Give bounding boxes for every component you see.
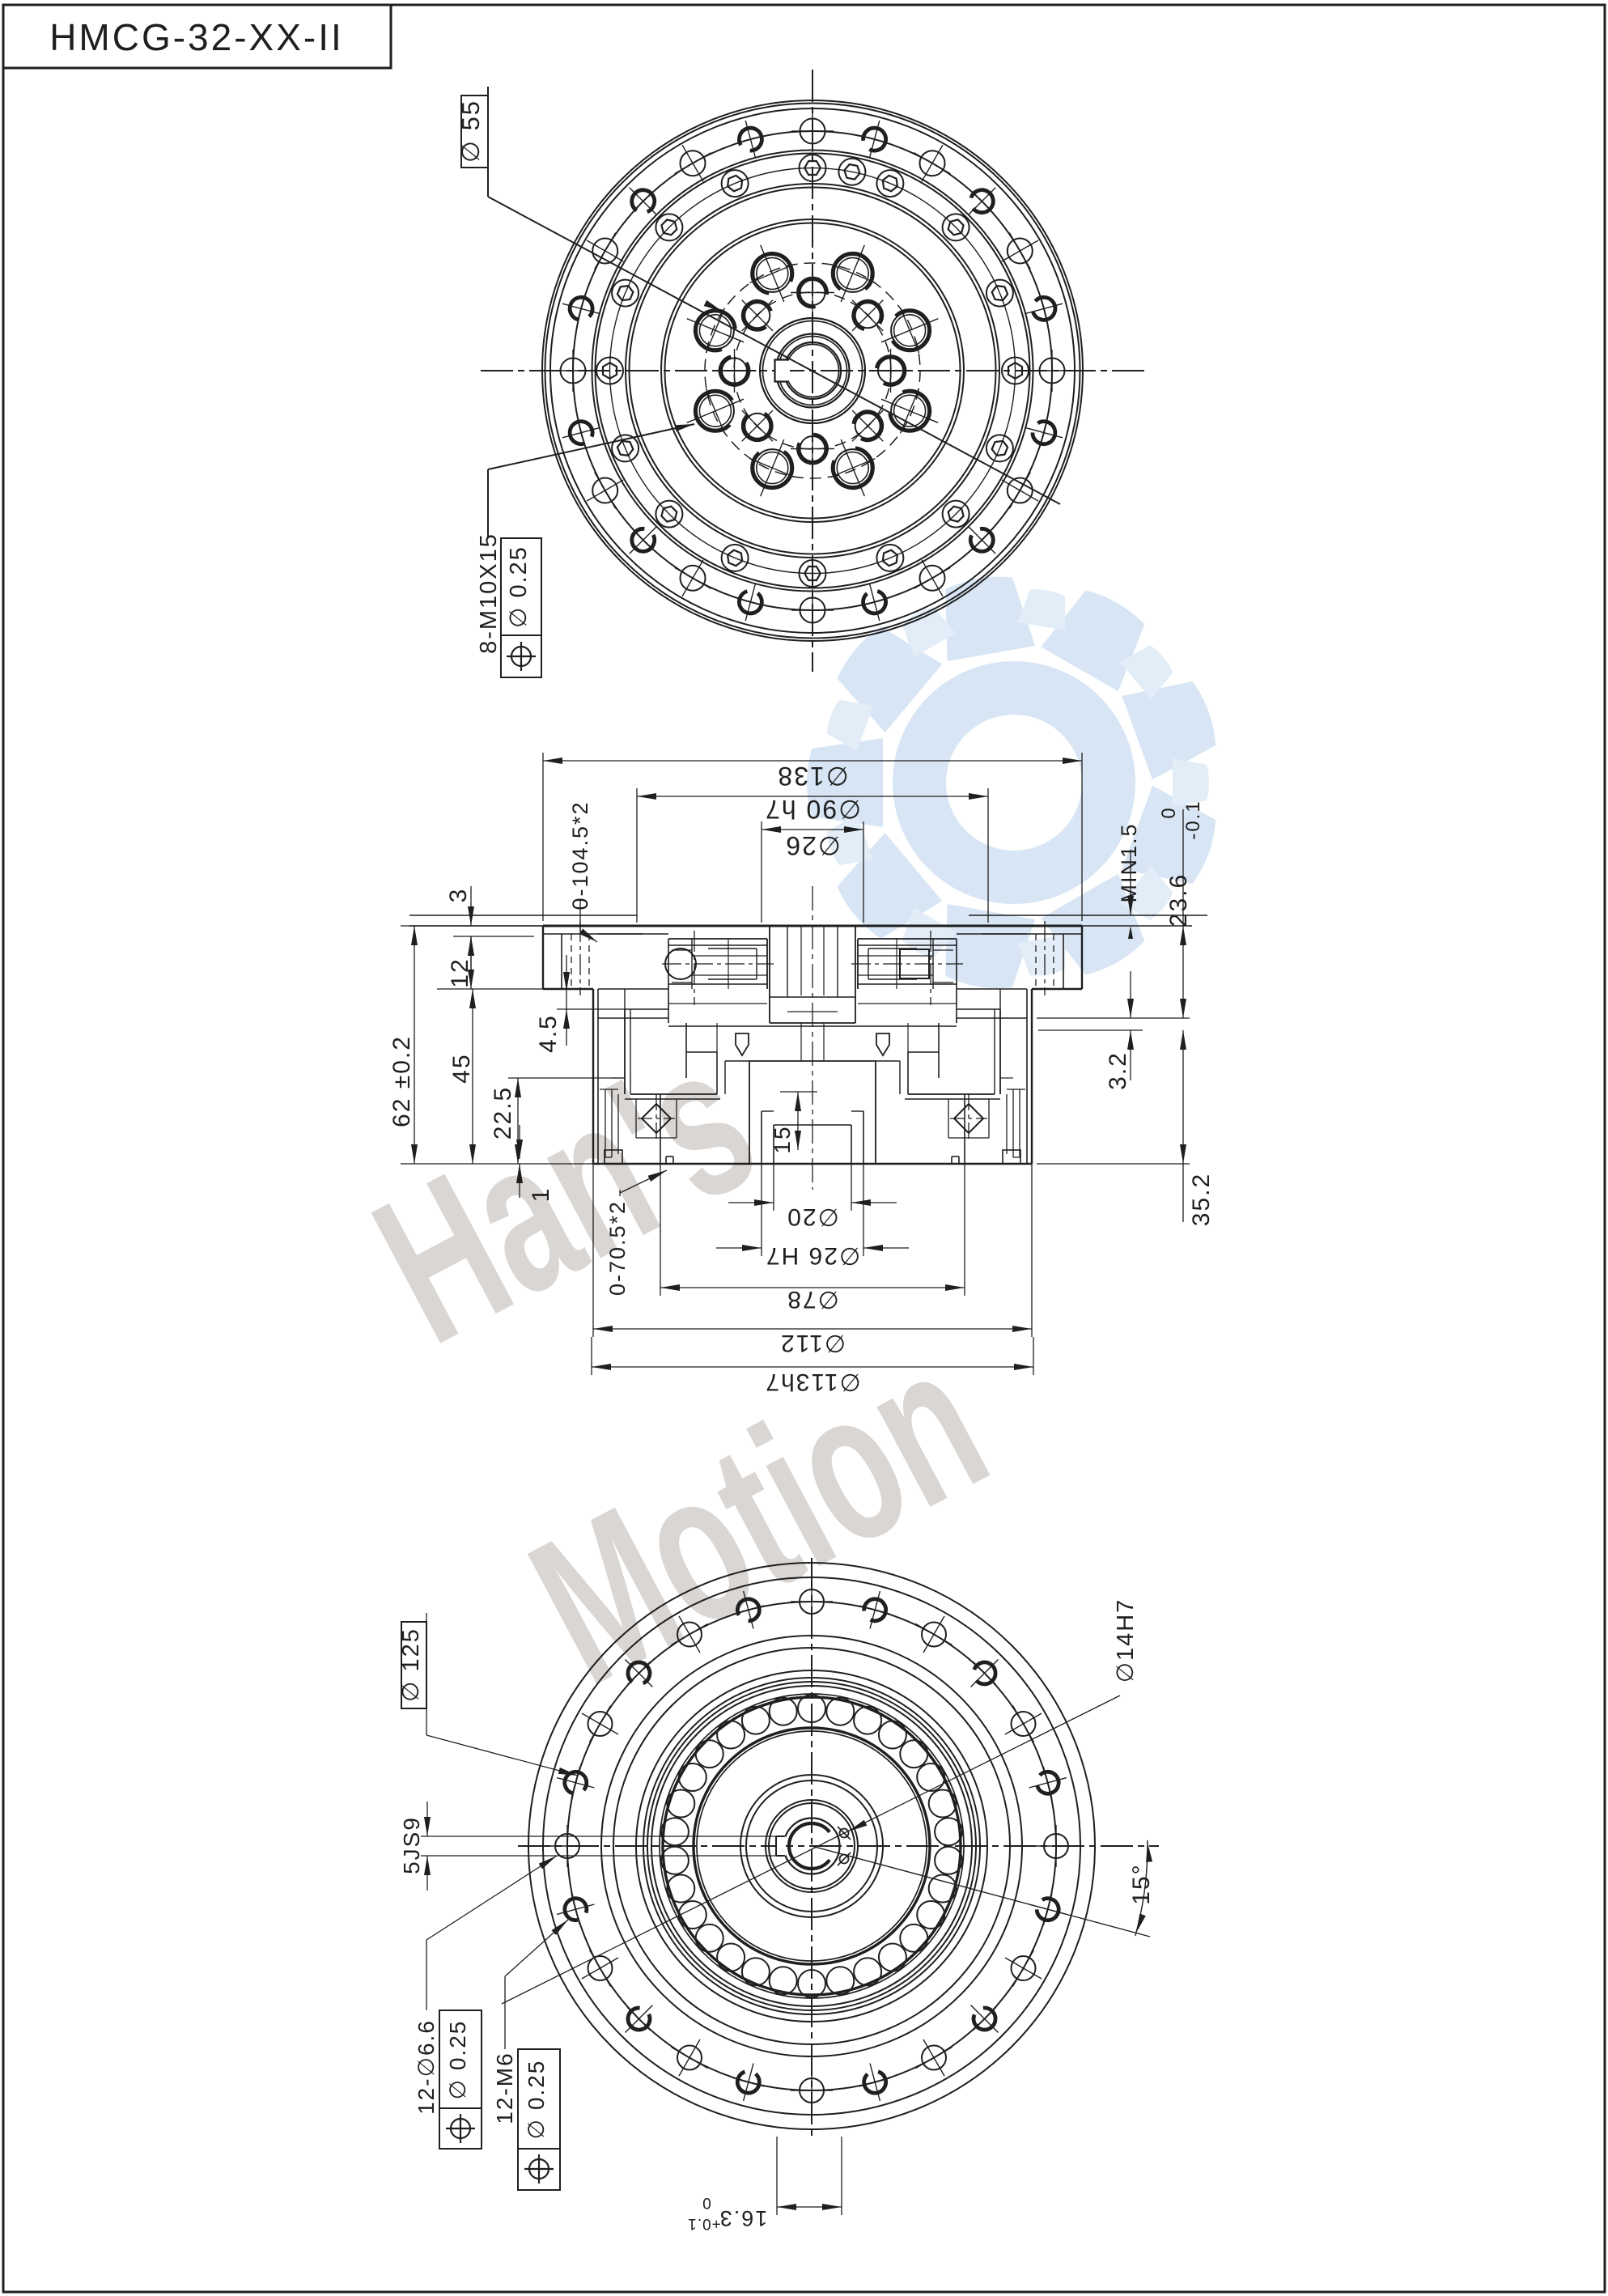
svg-text:HMCG-32-XX-II: HMCG-32-XX-II: [49, 16, 344, 58]
svg-text:∅ 0.25: ∅ 0.25: [445, 2020, 470, 2100]
svg-text:12-M6: 12-M6: [492, 2052, 517, 2124]
svg-text:∅112: ∅112: [779, 1330, 846, 1356]
svg-text:8-M10X15: 8-M10X15: [476, 533, 502, 654]
svg-text:15: 15: [770, 1125, 795, 1153]
svg-text:∅ 0.25: ∅ 0.25: [524, 2060, 549, 2140]
svg-text:∅ 125: ∅ 125: [398, 1628, 424, 1702]
svg-text:0: 0: [1158, 806, 1180, 818]
svg-text:3: 3: [445, 888, 472, 903]
svg-text:0: 0: [702, 2194, 711, 2211]
svg-text:12-∅6.6: 12-∅6.6: [414, 2019, 439, 2115]
svg-text:35.2: 35.2: [1188, 1173, 1215, 1226]
svg-text:MIN1.5: MIN1.5: [1117, 822, 1141, 902]
svg-text:∅20: ∅20: [786, 1203, 839, 1230]
svg-text:∅90 h7: ∅90 h7: [764, 795, 861, 824]
svg-text:∅78: ∅78: [786, 1286, 839, 1313]
svg-text:1: 1: [528, 1187, 554, 1203]
svg-text:∅26 H7: ∅26 H7: [765, 1242, 860, 1269]
svg-text:5JS9: 5JS9: [399, 1816, 424, 1874]
svg-text:23.6: 23.6: [1165, 873, 1192, 927]
svg-text:∅138: ∅138: [776, 762, 848, 791]
svg-text:+0.1: +0.1: [687, 2215, 721, 2232]
svg-text:15°: 15°: [1128, 1863, 1155, 1904]
svg-text:∅14H7: ∅14H7: [1113, 1598, 1139, 1683]
svg-text:0-104.5*2: 0-104.5*2: [568, 800, 592, 910]
svg-text:62 ±0.2: 62 ±0.2: [388, 1035, 415, 1127]
svg-text:-0.1: -0.1: [1182, 800, 1204, 839]
svg-text:∅ 55: ∅ 55: [456, 100, 485, 163]
svg-text:22.5: 22.5: [490, 1086, 516, 1140]
svg-text:∅ 0.25: ∅ 0.25: [506, 545, 532, 628]
svg-text:∅113h7: ∅113h7: [764, 1369, 860, 1395]
svg-text:3.2: 3.2: [1105, 1051, 1131, 1090]
svg-text:12: 12: [447, 957, 473, 987]
svg-text:∅26: ∅26: [784, 831, 840, 860]
svg-text:0-70.5*2: 0-70.5*2: [605, 1200, 630, 1296]
svg-text:45: 45: [448, 1053, 475, 1083]
svg-text:4.5: 4.5: [535, 1014, 562, 1053]
svg-text:16.3: 16.3: [719, 2206, 768, 2230]
